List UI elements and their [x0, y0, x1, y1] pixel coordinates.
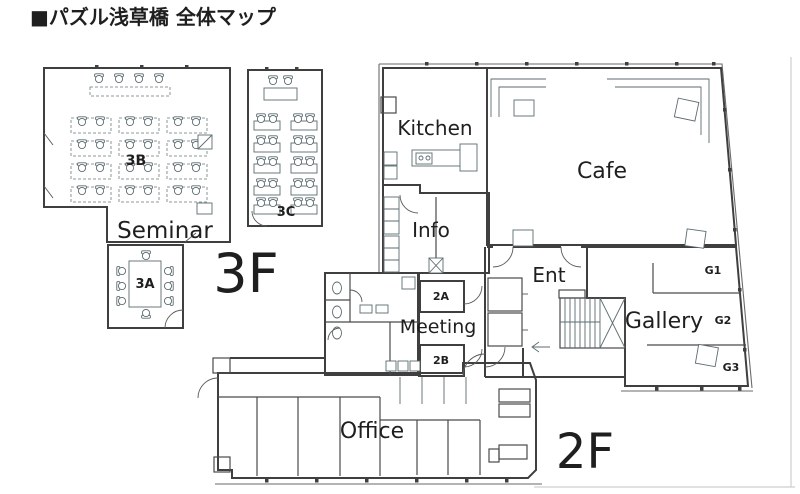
gallery-g1-label: G1 [705, 264, 722, 277]
map-image-edge [534, 57, 795, 487]
room-2a-label: 2A [433, 290, 450, 303]
seminar-3b-furniture [71, 74, 212, 214]
floor-2f [198, 62, 753, 484]
floor-map-page: ■パズル浅草橋 全体マップ 3F 2F Seminar 3B 3C 3A Kit… [0, 0, 800, 494]
elevator-shafts [488, 278, 528, 346]
room-2b-label: 2B [433, 354, 449, 367]
office-label: Office [340, 419, 404, 444]
kitchen-label: Kitchen [397, 116, 472, 140]
gallery-label: Gallery [625, 309, 703, 334]
entrance-label: Ent [532, 263, 565, 287]
meeting-label: Meeting [400, 316, 477, 338]
gallery-g3-label: G3 [723, 361, 740, 374]
room-cafe [487, 68, 736, 245]
seminar-label: Seminar [117, 218, 213, 244]
room-3b-label: 3B [126, 153, 146, 169]
staircase [532, 290, 625, 352]
floor-3f-label: 3F [213, 242, 278, 305]
map-title: ■パズル浅草橋 全体マップ [30, 5, 277, 29]
room-3a-label: 3A [135, 277, 154, 292]
cafe-label: Cafe [577, 159, 627, 184]
room-3c-label: 3C [277, 205, 296, 220]
floor-3f [44, 65, 322, 328]
info-label: Info [412, 218, 450, 242]
floor-2f-label: 2F [556, 424, 614, 480]
room-3c-furniture [254, 76, 317, 214]
floor-map-canvas: ■パズル浅草橋 全体マップ 3F 2F Seminar 3B 3C 3A Kit… [0, 0, 800, 494]
gallery-g2-label: G2 [715, 314, 732, 327]
